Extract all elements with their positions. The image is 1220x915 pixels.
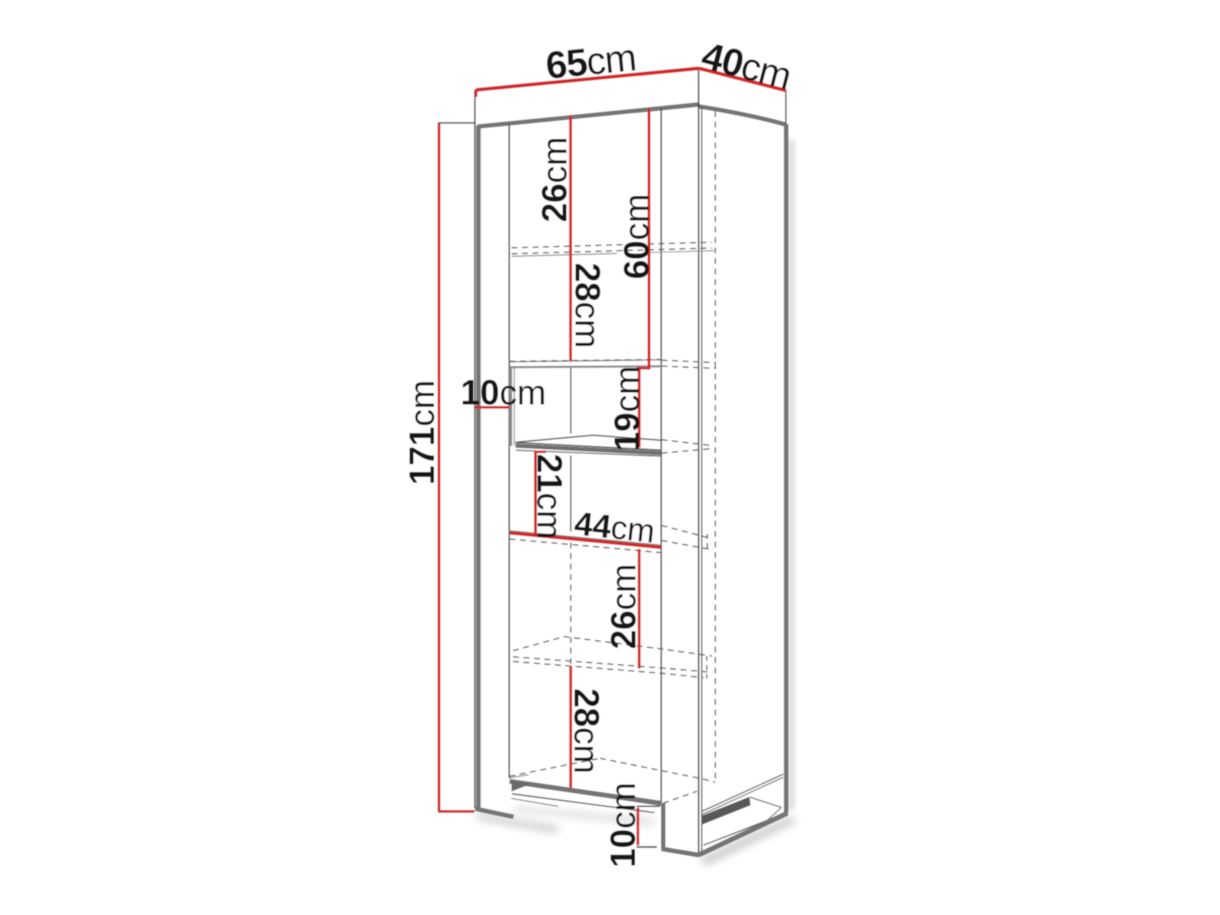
svg-text:28cm: 28cm [567,263,606,349]
svg-text:21cm: 21cm [530,454,569,540]
svg-text:26cm: 26cm [535,137,574,223]
svg-text:26cm: 26cm [604,564,643,650]
svg-text:10cm: 10cm [604,782,643,868]
svg-text:28cm: 28cm [567,688,606,774]
svg-text:65cm: 65cm [544,36,638,88]
svg-text:10cm: 10cm [461,373,547,412]
svg-text:60cm: 60cm [618,194,657,280]
svg-text:19cm: 19cm [608,366,647,452]
svg-text:171cm: 171cm [403,380,442,485]
